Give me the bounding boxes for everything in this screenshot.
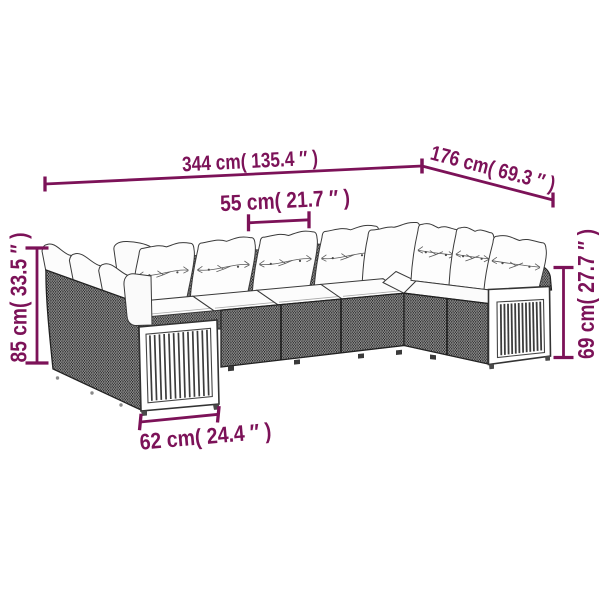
svg-text:85 cm( 33.5 ″ ): 85 cm( 33.5 ″ ) (6, 233, 32, 363)
svg-text:176 cm( 69.3 ″ ): 176 cm( 69.3 ″ ) (428, 142, 558, 197)
svg-text:55 cm( 21.7 ″ ): 55 cm( 21.7 ″ ) (219, 185, 350, 216)
svg-text:69 cm( 27.7 ″ ): 69 cm( 27.7 ″ ) (573, 229, 599, 359)
svg-text:62 cm( 24.4 ″ ): 62 cm( 24.4 ″ ) (139, 418, 273, 454)
